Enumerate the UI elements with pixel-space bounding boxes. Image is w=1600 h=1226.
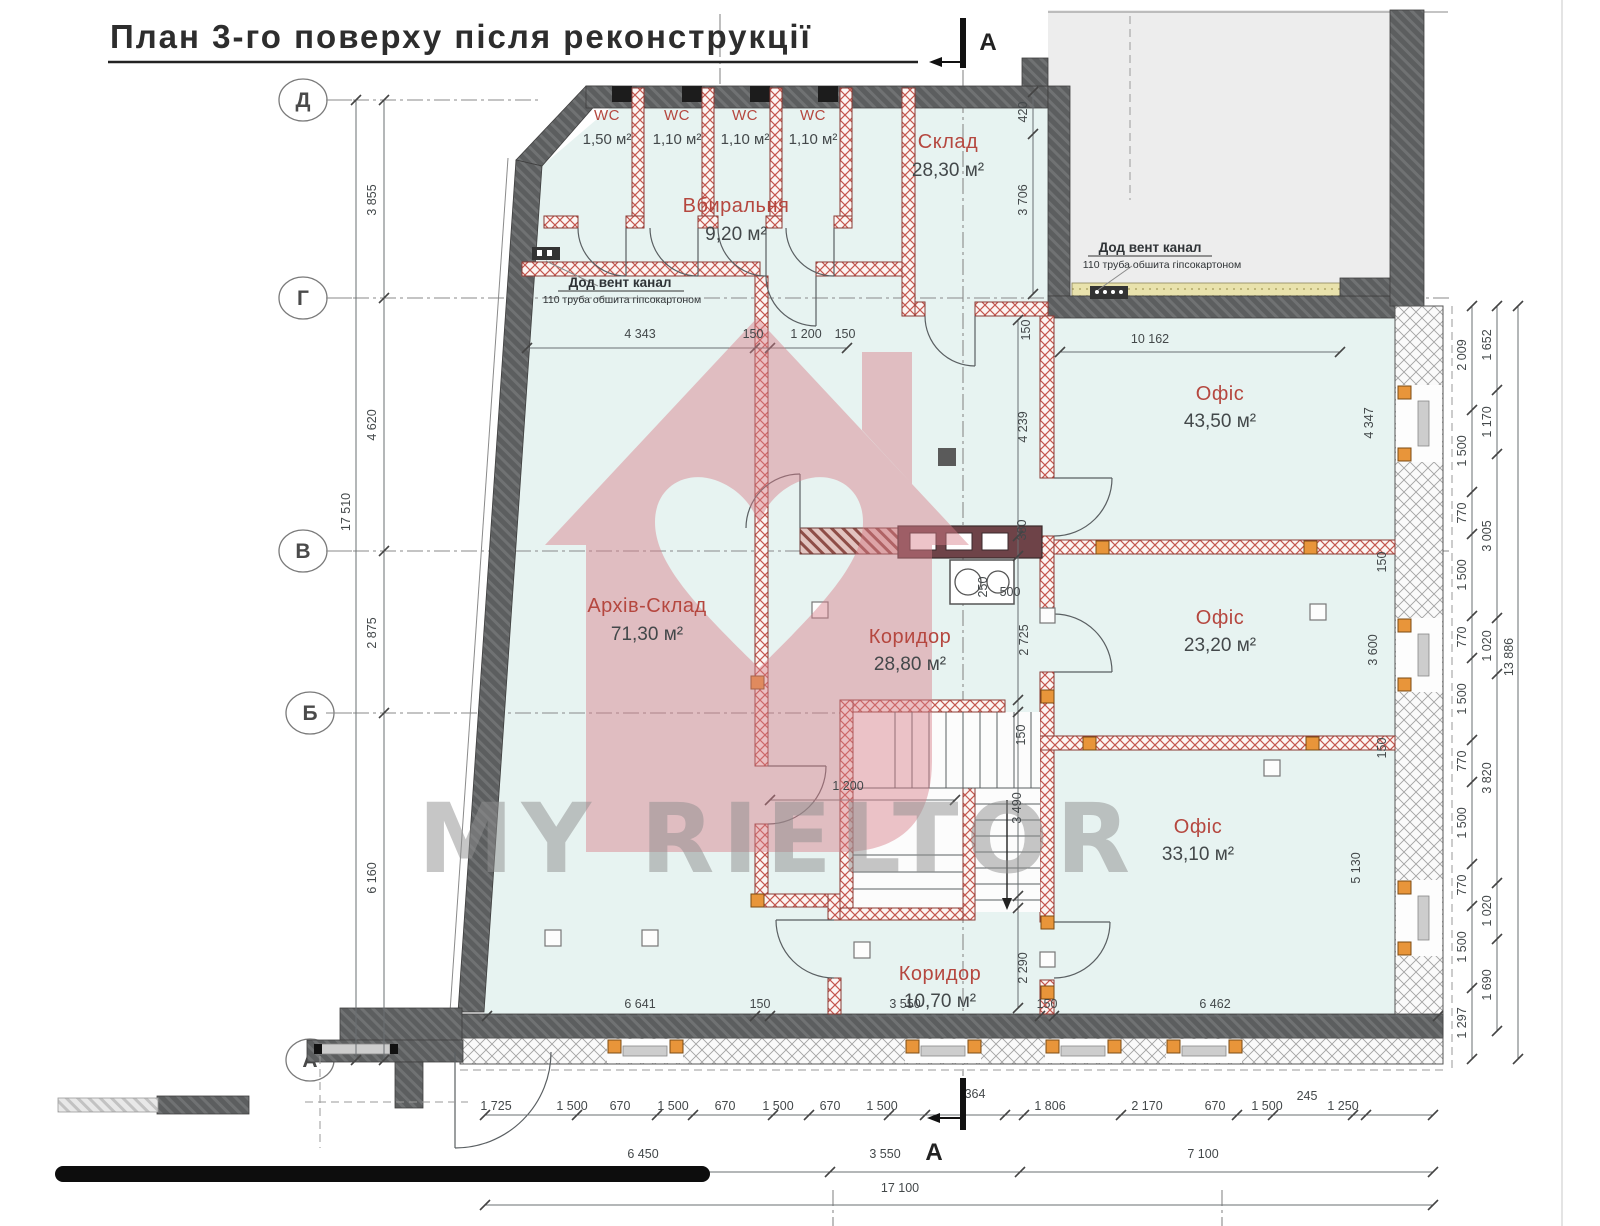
dimension-top_chain-2: 1 200: [790, 327, 821, 341]
room-area: 1,10 м²: [721, 131, 770, 148]
room-name: WC: [594, 107, 620, 124]
room-area: 43,50 м²: [1184, 411, 1256, 432]
section-marker-bottom: A: [925, 1078, 966, 1166]
page-title: План 3-го поверху після реконструкції: [110, 18, 812, 55]
dimension-left_chain-0: 3 855: [365, 184, 379, 215]
drawing-title: План 3-го поверху після реконструкції: [108, 18, 918, 62]
dimension-bottom_row1-6: 670: [820, 1099, 841, 1113]
room-area: 71,30 м²: [611, 624, 683, 645]
dimension-left_chain-1: 4 620: [365, 409, 379, 440]
room-area: 1,10 м²: [789, 131, 838, 148]
dimension-bottom_row1-7: 1 500: [866, 1099, 897, 1113]
floor-plan-canvas: ДГВБА: [0, 0, 1600, 1226]
floor-plan: ДГВБА: [0, 0, 1600, 1226]
dimension-bottom_row1-5: 1 500: [762, 1099, 793, 1113]
dimension-top_chain-3: 150: [835, 327, 856, 341]
dimension-stairs-1: 3 490: [1010, 792, 1024, 823]
dimension-bottom_row1-12: 1 500: [1251, 1099, 1282, 1113]
room-name: Склад: [918, 131, 978, 153]
room-area: 1,50 м²: [583, 131, 632, 148]
dimension-right_inner-7: 1 500: [1455, 807, 1469, 838]
dimension-kitchen-0: 250: [976, 577, 990, 598]
dimension-right_inner-9: 1 500: [1455, 931, 1469, 962]
room-area: 28,30 м²: [912, 160, 984, 181]
section-label: A: [925, 1139, 942, 1166]
room-name: WC: [732, 107, 758, 124]
dimension-middle_column-5: 150: [1014, 725, 1028, 746]
dimension-bottom_row2-2: 7 100: [1187, 1147, 1218, 1161]
grid-axes: ДГВБА: [279, 79, 352, 1081]
dimension-right_inner-0: 2 009: [1455, 339, 1469, 370]
room-name: Офіс: [1196, 383, 1244, 405]
dimension-right_inner-1: 1 500: [1455, 435, 1469, 466]
dimension-above_bottom_wall-1: 150: [750, 997, 771, 1011]
section-label: A: [979, 29, 996, 56]
room-area: 9,20 м²: [705, 224, 767, 245]
dimension-top_right-1: 10 162: [1131, 332, 1169, 346]
dimension-right_inner-6: 770: [1455, 751, 1469, 772]
watermark-text: MY RIELTOR: [418, 783, 1138, 895]
dimension-left_chain-4: 17 510: [339, 493, 353, 531]
room-area: 1,10 м²: [653, 131, 702, 148]
dimension-room_heights-0: 4 347: [1362, 407, 1376, 438]
dimension-right_mid-6: 1 690: [1480, 969, 1494, 1000]
dimension-right_inner-3: 1 500: [1455, 559, 1469, 590]
vent-note-title: Дод вент канал: [1099, 240, 1202, 255]
dimension-above_bottom_wall-0: 6 641: [624, 997, 655, 1011]
grid-axis-label: Б: [302, 702, 317, 725]
grid-axis-label: Г: [297, 287, 309, 310]
dimension-right_inner-2: 770: [1455, 503, 1469, 524]
vent-note-subtitle: 110 труба обшита гіпсокартоном: [1083, 259, 1241, 271]
room-area: 33,10 м²: [1162, 844, 1234, 865]
dimension-bottom_row2-1: 3 550: [869, 1147, 900, 1161]
dimension-bottom_row1-4: 670: [715, 1099, 736, 1113]
dimension-room_heights-1: 3 600: [1366, 634, 1380, 665]
room-name: Офіс: [1196, 607, 1244, 629]
dimension-bottom_row1-2: 670: [610, 1099, 631, 1113]
room-name: WC: [800, 107, 826, 124]
dimension-right_mid-0: 1 652: [1480, 329, 1494, 360]
dimension-left_chain-3: 6 160: [365, 862, 379, 893]
room-area: 28,80 м²: [874, 654, 946, 675]
dimension-bottom_row1-10: 2 170: [1131, 1099, 1162, 1113]
room-name: Коридор: [869, 626, 951, 648]
dimension-right_mid-4: 3 820: [1480, 762, 1494, 793]
scale-bar: [55, 1166, 710, 1182]
dimension-bottom_row1-13: 245: [1297, 1089, 1318, 1103]
column: [938, 448, 956, 466]
room-name: Офіс: [1174, 816, 1222, 838]
dimension-middle_column-1: 3 706: [1016, 184, 1030, 215]
dimension-right_mid-2: 3 005: [1480, 520, 1494, 551]
section-marker-top: A: [929, 18, 997, 68]
dimension-room_heights-2: 5 130: [1349, 852, 1363, 883]
dimension-bottom_total-0: 17 100: [881, 1181, 919, 1195]
dimension-wall_thickness-1: 150: [1375, 738, 1389, 759]
dimension-right_mid-5: 1 020: [1480, 895, 1494, 926]
dimension-middle_column-3: 380: [1015, 520, 1029, 541]
dimension-bottom_row1-3: 1 500: [657, 1099, 688, 1113]
dimension-bottom_row1-9: 1 806: [1034, 1099, 1065, 1113]
grid-axis-label: В: [295, 540, 310, 563]
dimension-bottom_row1-1: 1 500: [556, 1099, 587, 1113]
dimension-bottom_row1-0: 1 725: [480, 1099, 511, 1113]
dimension-top_chain-1: 150: [743, 327, 764, 341]
vent-note-subtitle: 110 труба обшита гіпсокартоном: [543, 294, 701, 306]
dimension-middle_column-6: 2 290: [1016, 952, 1030, 983]
dimension-right_total-0: 13 886: [1502, 638, 1516, 676]
dimension-above_bottom_wall-3: 150: [1037, 997, 1058, 1011]
grid-axis-label: Д: [296, 89, 311, 112]
section-arrow-icon: [929, 57, 942, 67]
dimension-right_mid-3: 1 020: [1480, 630, 1494, 661]
dimension-kitchen-1: 500: [1000, 585, 1021, 599]
room-name: Вбиральня: [683, 195, 790, 217]
dimension-middle_column-2: 4 239: [1016, 411, 1030, 442]
dimension-middle_column-4: 2 725: [1017, 624, 1031, 655]
dimension-bottom_row1-14: 1 250: [1327, 1099, 1358, 1113]
dimension-stairs-0: 1 200: [832, 779, 863, 793]
dimension-middle_column-0: 420: [1016, 102, 1030, 123]
dimension-right_mid-1: 1 170: [1480, 406, 1494, 437]
room-area: 23,20 м²: [1184, 635, 1256, 656]
room-name: Архів-Склад: [587, 595, 706, 617]
room-name: WC: [664, 107, 690, 124]
dimension-bottom_row1-11: 670: [1205, 1099, 1226, 1113]
dimension-right_inner-8: 770: [1455, 875, 1469, 896]
dimension-left_chain-2: 2 875: [365, 617, 379, 648]
dimension-right_inner-10: 1 297: [1455, 1007, 1469, 1038]
vent-note-title: Дод вент канал: [569, 275, 672, 290]
dimension-wall_thickness-0: 150: [1375, 552, 1389, 573]
dimension-right_inner-4: 770: [1455, 627, 1469, 648]
dimension-above_bottom_wall-4: 6 462: [1199, 997, 1230, 1011]
room-name: Коридор: [899, 963, 981, 985]
dimension-top_right-0: 150: [1019, 320, 1033, 341]
dimension-bottom_row1-8: 364: [965, 1087, 986, 1101]
dimension-bottom_row2-0: 6 450: [627, 1147, 658, 1161]
dimension-above_bottom_wall-2: 3 550: [889, 997, 920, 1011]
dimension-top_chain-0: 4 343: [624, 327, 655, 341]
dimension-right_inner-5: 1 500: [1455, 683, 1469, 714]
